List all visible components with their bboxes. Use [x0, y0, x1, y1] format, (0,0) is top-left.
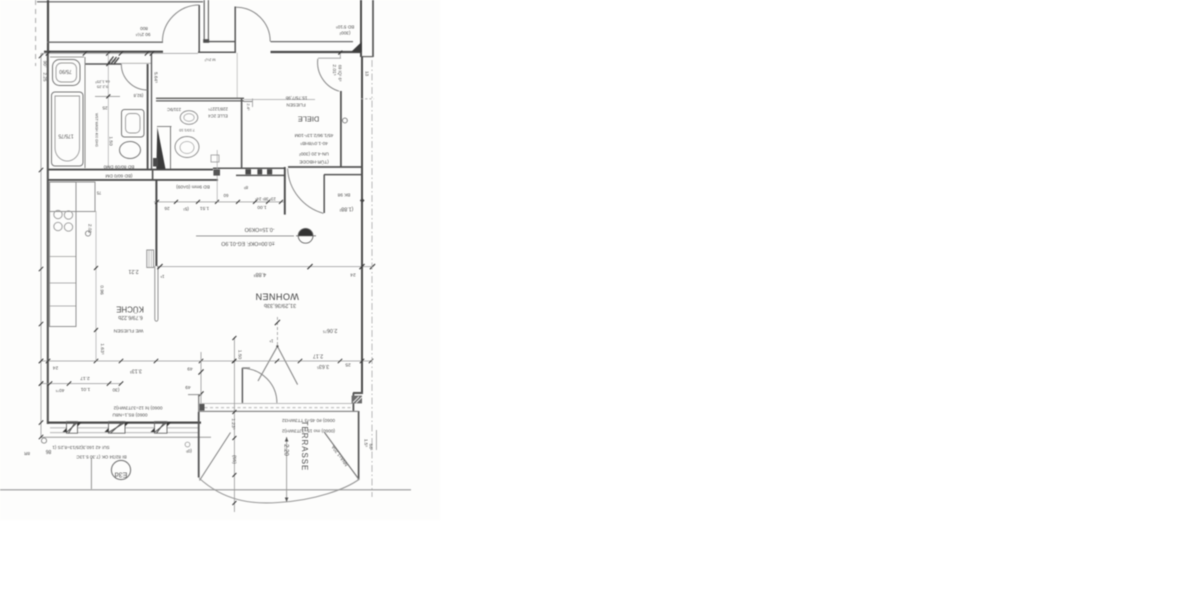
- svg-text:88¹: 88¹: [369, 444, 374, 451]
- svg-text:2.01: 2.01: [87, 224, 93, 234]
- svg-text:WE FLIESEN: WE FLIESEN: [113, 328, 143, 334]
- svg-text:2.01⁵: 2.01⁵: [331, 64, 337, 75]
- svg-text:2.25: 2.25: [43, 73, 48, 82]
- svg-text:40⁷⁵: 40⁷⁵: [56, 388, 65, 393]
- svg-text:25: 25: [345, 362, 351, 368]
- svg-text:60: 60: [223, 193, 228, 198]
- svg-text:3.63⁵: 3.63⁵: [317, 363, 329, 369]
- svg-text:UN-4.20 (300²: UN-4.20 (300²: [299, 152, 329, 157]
- svg-text:0.96: 0.96: [99, 285, 105, 295]
- svg-text:800: 800: [140, 26, 148, 31]
- svg-text:1.01: 1.01: [80, 386, 90, 392]
- svg-text:ELLE 2C4: ELLE 2C4: [208, 114, 228, 119]
- svg-text:228/1227⁵: 228/1227⁵: [208, 107, 228, 112]
- svg-text:WOHNEN: WOHNEN: [255, 292, 299, 302]
- svg-text:49: 49: [185, 384, 191, 390]
- svg-text:2.17: 2.17: [80, 375, 90, 381]
- svg-text:M 2¼⁵: M 2¼⁵: [204, 58, 215, 62]
- svg-text:±0.00=OKF. EG-01.9O: ±0.00=OKF. EG-01.9O: [221, 240, 274, 246]
- svg-text:(55): (55): [231, 455, 237, 464]
- svg-text:4.88³: 4.88³: [254, 271, 266, 277]
- svg-text:1.50: 1.50: [108, 136, 114, 146]
- svg-text:ca.1,25⁵: ca.1,25⁵: [95, 80, 110, 85]
- svg-text:49: 49: [187, 366, 193, 372]
- svg-text:24: 24: [350, 272, 356, 278]
- svg-text:90⁷: 90⁷: [43, 61, 48, 68]
- svg-text:BI 82/34 OK (7.30 5.13C: BI 82/34 OK (7.30 5.13C: [76, 455, 127, 460]
- svg-text:1.51: 1.51: [200, 206, 210, 211]
- svg-text:6.79/6.22b: 6.79/6.22b: [118, 314, 143, 320]
- svg-text:2.4⁵: 2.4⁵: [246, 103, 251, 111]
- svg-text:13: 13: [365, 71, 370, 77]
- svg-text:2¼: 2¼: [110, 59, 116, 64]
- svg-text:7:10/1:10: 7:10/1:10: [179, 128, 195, 132]
- svg-text:1.50: 1.50: [237, 350, 243, 360]
- svg-text:(5¹: (5¹: [183, 207, 189, 212]
- svg-text:BK 98: BK 98: [337, 193, 350, 198]
- svg-text:8R: 8R: [23, 451, 30, 456]
- svg-text:2.17: 2.17: [313, 353, 323, 359]
- svg-text:15.75/7,9b: 15.75/7,9b: [285, 96, 307, 101]
- svg-text:0060) 8S,1=N8U: 0060) 8S,1=N8U: [112, 413, 148, 418]
- svg-text:KÜCHE: KÜCHE: [116, 305, 144, 314]
- svg-text:-0.15=OK9O: -0.15=OK9O: [245, 226, 275, 232]
- svg-text:5.64⁵: 5.64⁵: [153, 72, 158, 83]
- svg-text:(TÜR-HBODE: (TÜR-HBODE: [299, 160, 328, 166]
- svg-text:0060) #0 45=3 TT3WH32: 0060) #0 45=3 TT3WH32: [282, 418, 335, 423]
- svg-text:69 IQ¹ 6³: 69 IQ¹ 6³: [337, 65, 342, 82]
- svg-text:(300²: (300²: [339, 31, 350, 36]
- svg-text:90 2½⁵: 90 2½⁵: [135, 32, 150, 38]
- svg-text:TERRASSE: TERRASSE: [300, 421, 309, 472]
- svg-text:BD 5'10⁵: BD 5'10⁵: [336, 25, 355, 30]
- svg-text:40-1.0⁵/8HB⁵: 40-1.0⁵/8HB⁵: [300, 141, 328, 146]
- svg-text:8ᵇ: 8ᵇ: [244, 185, 248, 190]
- svg-text:SU! 42 160,3(25/13=8,2S (1: SU! 42 160,3(25/13=8,2S (1: [52, 445, 110, 450]
- svg-text:1ᵇ: 1ᵇ: [160, 274, 164, 279]
- svg-text:24: 24: [53, 365, 59, 371]
- svg-text:BD 9mm (0A09): BD 9mm (0A09): [176, 185, 210, 190]
- svg-text:(0060) mo 15=3JT3WH)2: (0060) mo 15=3JT3WH)2: [282, 429, 335, 434]
- svg-text:23¹ 38¹ 24¹: 23¹ 38¹ 24¹: [255, 197, 276, 202]
- svg-text:(92,8: (92,8: [133, 93, 143, 98]
- svg-text:25: 25: [102, 106, 108, 111]
- svg-text:2.06⁷⁵: 2.06⁷⁵: [323, 327, 338, 333]
- svg-text:175/75: 175/75: [58, 133, 74, 139]
- svg-text:86: 86: [46, 448, 52, 454]
- svg-text:2.20: 2.20: [283, 444, 289, 456]
- svg-text:45/1.96/2.13⁵-10M: 45/1.96/2.13⁵-10M: [295, 133, 334, 138]
- svg-text:(1.88²: (1.88²: [339, 206, 353, 212]
- svg-text:1.23⁵: 1.23⁵: [230, 418, 236, 430]
- svg-text:31,29/36,33b: 31,29/36,33b: [264, 302, 296, 308]
- svg-text:DIELE: DIELE: [298, 115, 319, 124]
- svg-text:(30: (30: [112, 387, 119, 393]
- svg-text:BD 80/09 DM0: BD 80/09 DM0: [103, 165, 134, 170]
- svg-text:FLIESEN: FLIESEN: [286, 103, 305, 108]
- svg-text:75: 75: [96, 191, 101, 196]
- svg-text:1.5⁵: 1.5⁵: [364, 439, 369, 447]
- svg-text:0060) ht 12=3JT3WH)2: 0060) ht 12=3JT3WH)2: [113, 406, 162, 411]
- svg-text:231/9C: 231/9C: [167, 107, 181, 112]
- svg-text:75/90: 75/90: [59, 68, 72, 74]
- svg-text:1.63⁵: 1.63⁵: [99, 343, 105, 355]
- svg-text:1ᵇ: 1ᵇ: [269, 339, 273, 344]
- svg-text:(0ᵇ: (0ᵇ: [186, 449, 192, 454]
- svg-text:E3d: E3d: [115, 471, 128, 480]
- svg-text:3.13³: 3.13³: [130, 368, 142, 374]
- svg-text:WST WASH 400 GHG: WST WASH 400 GHG: [95, 113, 99, 147]
- svg-text:(BD 60/0 DM: (BD 60/0 DM: [105, 174, 132, 179]
- svg-text:9,2.25: 9,2.25: [96, 85, 108, 90]
- svg-text:1.00: 1.00: [257, 205, 267, 210]
- svg-text:2.21: 2.21: [128, 268, 138, 274]
- svg-text:26: 26: [164, 206, 170, 211]
